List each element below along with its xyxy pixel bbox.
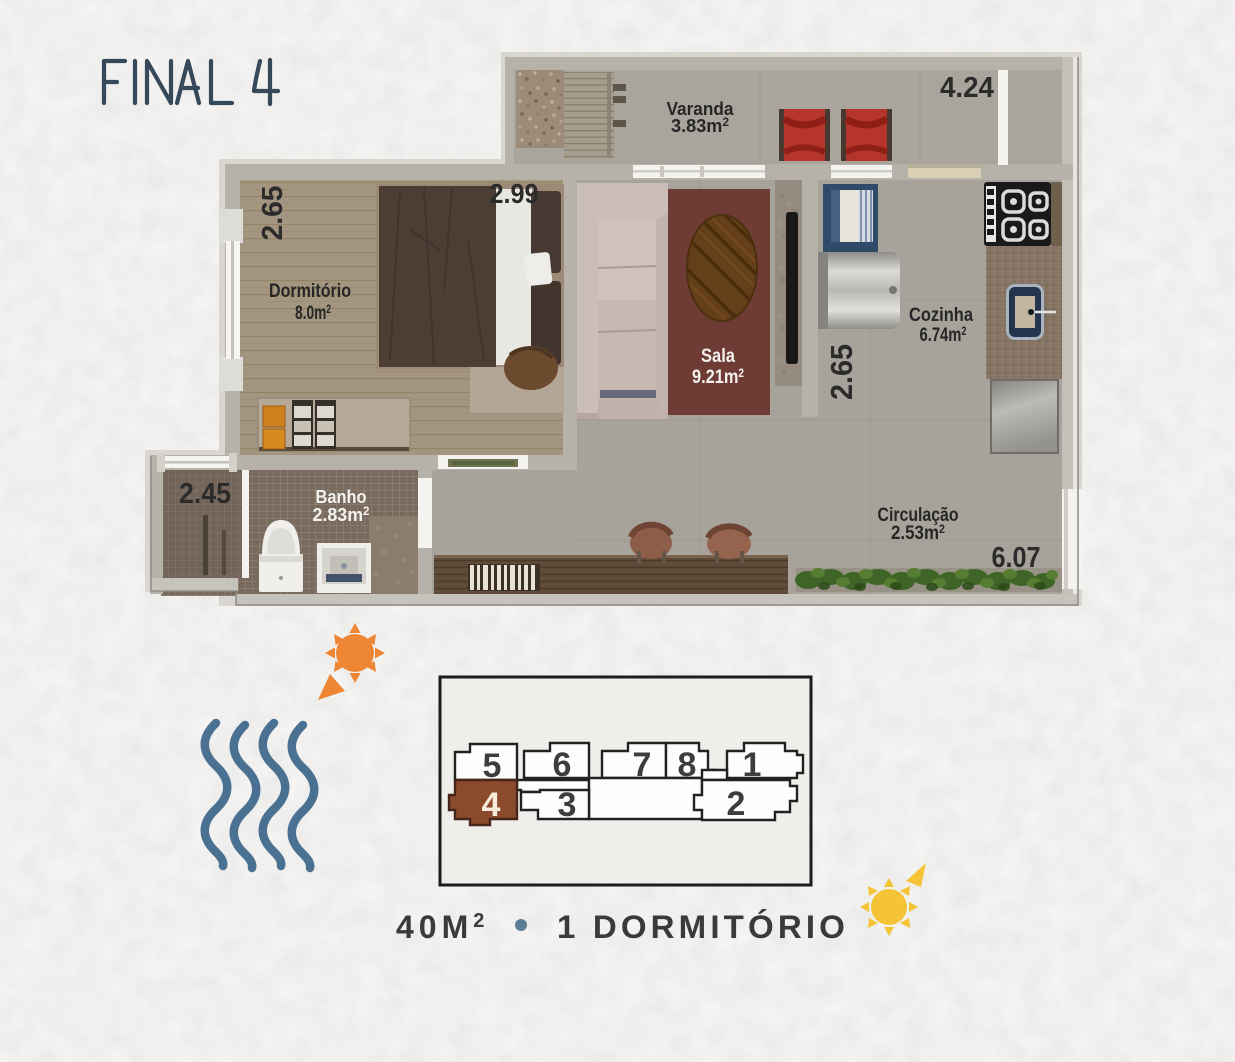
svg-text:6: 6	[553, 746, 572, 784]
svg-text:3: 3	[558, 786, 577, 824]
svg-text:2.83m2: 2.83m2	[313, 504, 370, 525]
svg-text:4.24: 4.24	[940, 72, 994, 104]
svg-text:7: 7	[633, 746, 652, 784]
svg-text:6.74m2: 6.74m2	[920, 324, 967, 346]
svg-text:1: 1	[743, 746, 762, 784]
svg-text:2.45: 2.45	[179, 478, 231, 510]
svg-text:40M2: 40M2	[396, 909, 484, 945]
svg-text:5: 5	[483, 747, 502, 785]
svg-text:9.21m2: 9.21m2	[692, 366, 744, 388]
svg-text:2.99: 2.99	[490, 178, 539, 209]
svg-text:2.65: 2.65	[257, 186, 289, 241]
svg-text:2.65: 2.65	[824, 344, 859, 400]
svg-text:8: 8	[678, 746, 697, 784]
svg-text:Cozinha: Cozinha	[909, 304, 973, 326]
svg-text:4: 4	[482, 786, 501, 824]
svg-text:2: 2	[727, 785, 746, 823]
svg-text:3.83m2: 3.83m2	[671, 115, 729, 136]
svg-text:2.53m2: 2.53m2	[891, 522, 945, 544]
svg-text:1 DORMITÓRIO: 1 DORMITÓRIO	[557, 909, 849, 945]
svg-text:Sala: Sala	[701, 345, 735, 367]
svg-text:6.07: 6.07	[992, 542, 1041, 574]
svg-text:8.0m2: 8.0m2	[295, 302, 331, 324]
svg-text:Dormitório: Dormitório	[269, 280, 351, 302]
